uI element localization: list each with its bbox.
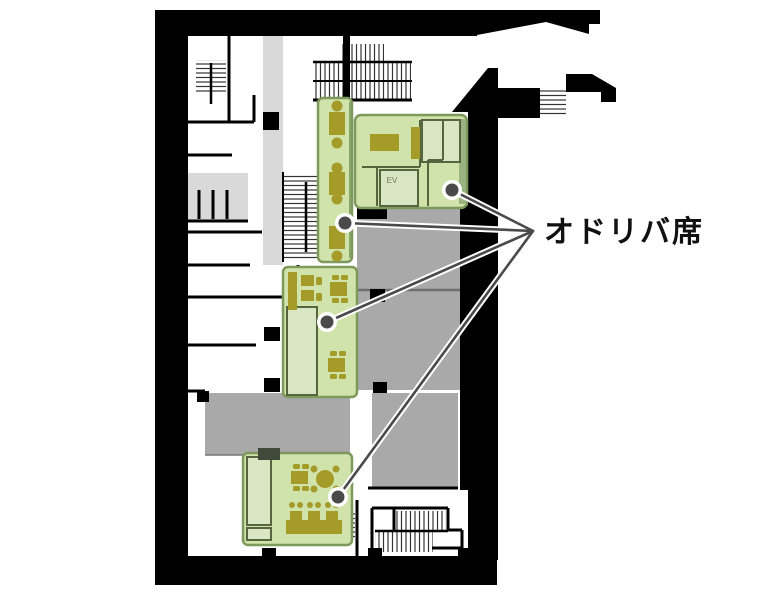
wall-left-band (155, 10, 188, 585)
upper-room-bench (411, 127, 420, 159)
lower-room-sub (247, 457, 271, 525)
annotation-label: オドリバ席 (544, 215, 704, 249)
column-mid-left-2 (264, 378, 280, 392)
wall-right-arm (498, 88, 540, 118)
lower-room-long-bench (286, 520, 342, 534)
upper-room-table (370, 134, 399, 151)
corridor-strip (263, 36, 283, 265)
middle-room-stairwell (287, 307, 317, 395)
callout-dot-middle-room (321, 316, 334, 329)
wall-stub-2 (262, 548, 276, 556)
lower-room-round-table (316, 470, 334, 488)
wall-stair-side (343, 33, 350, 100)
stairs-bottom-lower-run (375, 532, 433, 552)
wall-bottom-band (163, 556, 497, 585)
column-mid-left (264, 327, 280, 341)
column-band-left (197, 391, 209, 402)
stairs-bottom-upper-run (394, 511, 446, 530)
column-gray-room-2 (373, 382, 387, 393)
elevator-label: EV (387, 176, 398, 185)
middle-room-table-2 (328, 358, 345, 372)
floor-plan-page: EV オドリバ席 (0, 0, 779, 600)
wall-annex-tab (601, 92, 616, 102)
wall-right-wedge (452, 68, 498, 112)
lower-room-table (291, 471, 308, 484)
middle-room-bench (288, 272, 297, 310)
middle-room-table-1 (330, 282, 347, 296)
wall-right-band-inner (460, 205, 470, 490)
wall-right-band (468, 112, 498, 560)
wall-stub-3 (368, 548, 382, 556)
storage-room (186, 173, 248, 221)
stairs-mid-left (283, 175, 320, 259)
wall-annex-bar (566, 74, 616, 92)
callout-dot-counter (339, 217, 352, 230)
floor-plan: EV オドリバ席 (0, 0, 779, 600)
lower-room-sub-2 (247, 528, 271, 540)
wall-top-band (163, 10, 600, 36)
gray-room-lower (372, 393, 458, 488)
stairs-top-right (540, 89, 566, 117)
callout-dot-upper-room (446, 184, 459, 197)
callout-dot-lower-room (332, 491, 345, 504)
column-corridor (263, 112, 279, 130)
upper-room-sub (422, 120, 460, 162)
gray-band-center (205, 393, 350, 455)
lower-room-column (258, 448, 280, 460)
wall-stub-1 (170, 548, 186, 556)
